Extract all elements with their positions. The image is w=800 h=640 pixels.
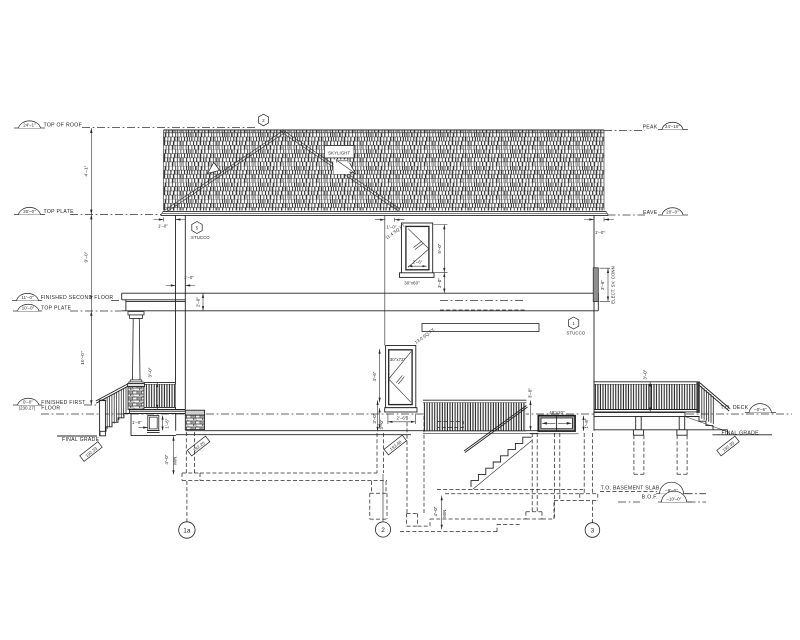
svg-text:3′–0″: 3′–0″ [437, 278, 442, 288]
svg-text:4′–0″: 4′–0″ [433, 506, 438, 516]
svg-text:1′–0″: 1′–0″ [132, 420, 142, 425]
svg-text:–0′–6″: –0′–6″ [754, 407, 767, 412]
svg-text:3′–0″: 3′–0″ [148, 367, 153, 377]
svg-text:SKYLIGHT: SKYLIGHT [328, 150, 350, 155]
svg-text:ELECT. SV. CONN: ELECT. SV. CONN [611, 266, 616, 304]
svg-text:10′–0″: 10′–0″ [80, 351, 85, 365]
svg-text:1′–8″: 1′–8″ [584, 418, 589, 428]
svg-text:20′–0″: 20′–0″ [666, 210, 679, 215]
svg-text:EAVE: EAVE [643, 210, 658, 216]
svg-text:2: 2 [381, 527, 385, 534]
svg-text:20′–0″: 20′–0″ [23, 209, 36, 214]
svg-text:3′–0″: 3′–0″ [372, 413, 377, 423]
svg-text:FINISHED SECOND FLOOR: FINISHED SECOND FLOOR [41, 295, 114, 301]
svg-text:4′–1″: 4′–1″ [84, 165, 89, 176]
svg-text:4′–6″: 4′–6″ [372, 371, 377, 381]
svg-text:1a: 1a [183, 527, 191, 534]
svg-text:TOP OF ROOF: TOP OF ROOF [44, 122, 83, 128]
svg-text:48″x20″: 48″x20″ [549, 410, 565, 415]
svg-text:3′–0″: 3′–0″ [528, 388, 533, 398]
svg-text:(230.27): (230.27) [19, 406, 36, 411]
svg-text:9′–0″: 9′–0″ [84, 251, 89, 262]
svg-text:STUCCO: STUCCO [191, 235, 210, 240]
svg-text:10′–0″: 10′–0″ [22, 306, 35, 311]
svg-text:–10′–0″: –10′–0″ [667, 496, 682, 501]
svg-text:1′–0″: 1′–0″ [595, 230, 605, 235]
svg-text:5′–0″: 5′–0″ [437, 243, 442, 253]
svg-text:30″x72″: 30″x72″ [390, 357, 406, 362]
svg-text:2′–0″: 2′–0″ [196, 297, 201, 307]
svg-text:MIN.: MIN. [173, 455, 178, 464]
svg-text:1′–6″: 1′–6″ [164, 418, 169, 428]
svg-text:3: 3 [591, 527, 595, 534]
svg-text:30″x60″: 30″x60″ [404, 281, 420, 286]
svg-text:FINAL GRADE: FINAL GRADE [62, 437, 100, 443]
svg-text:FINAL GRADE: FINAL GRADE [722, 430, 760, 436]
svg-text:24′–1″: 24′–1″ [23, 123, 36, 128]
svg-text:3′–0″: 3′–0″ [643, 369, 648, 379]
svg-text:B.O.F.: B.O.F. [642, 495, 658, 501]
svg-text:MIN.: MIN. [442, 508, 447, 517]
svg-text:11′–0″: 11′–0″ [21, 295, 34, 300]
svg-text:3′–0″: 3′–0″ [379, 419, 384, 429]
svg-text:STUCCO: STUCCO [567, 331, 586, 336]
svg-text:24′–10″: 24′–10″ [665, 124, 680, 129]
svg-text:2′–6″: 2′–6″ [413, 259, 423, 264]
svg-text:T.O. BASEMENT SLAB: T.O. BASEMENT SLAB [601, 486, 660, 492]
svg-text:0′–0″: 0′–0″ [23, 400, 33, 405]
svg-text:1′–0″: 1′–0″ [184, 275, 194, 280]
svg-text:1′–0″: 1′–0″ [158, 224, 168, 229]
svg-text:TOP PLATE: TOP PLATE [44, 209, 75, 215]
svg-text:3′–6″: 3′–6″ [600, 280, 605, 290]
svg-text:TOP PLATE: TOP PLATE [41, 305, 72, 311]
svg-text:2′–6″: 2′–6″ [397, 415, 407, 420]
svg-text:PEAK: PEAK [643, 125, 658, 131]
svg-text:FLOOR: FLOOR [41, 406, 60, 412]
svg-text:4′–0″: 4′–0″ [164, 454, 169, 464]
svg-text:T.O. DECK: T.O. DECK [721, 405, 749, 411]
